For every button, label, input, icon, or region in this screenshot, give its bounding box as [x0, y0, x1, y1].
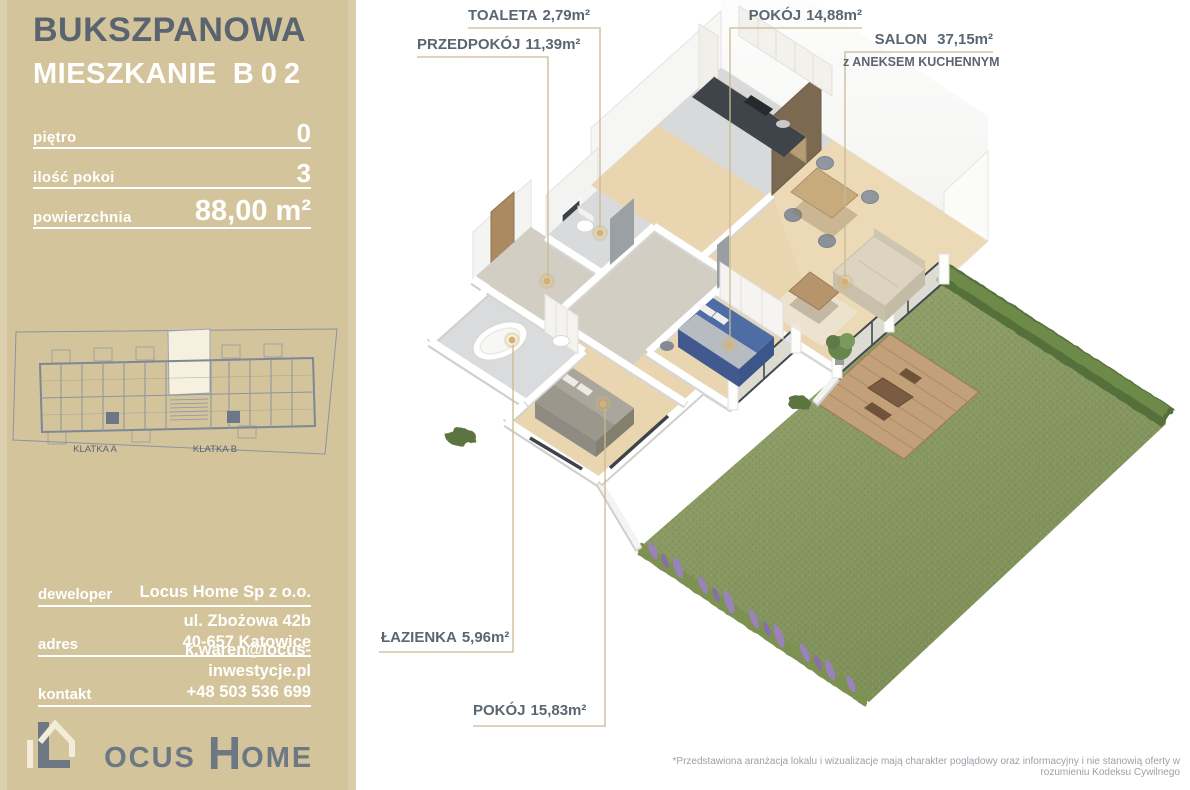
spec-value-floor: 0 — [297, 121, 311, 146]
logo-text-ome: OME — [241, 745, 313, 772]
spec-label-rooms: ilość pokoi — [33, 169, 115, 186]
contact-phone: +48 503 536 699 — [91, 682, 311, 703]
sidebar-left-edge — [0, 0, 7, 790]
sink — [776, 120, 790, 128]
klatka-a-label: KLATKA A — [73, 444, 117, 455]
washbasin — [553, 336, 570, 347]
floorplan-area: TOALETA2,79m² PRZEDPOKÓJ11,39m² POKÓJ14,… — [356, 0, 1190, 790]
address-label: adres — [38, 636, 78, 653]
room-label-pokoj-2: POKÓJ15,83m² — [473, 702, 609, 719]
spec-label-area: powierzchnia — [33, 209, 132, 226]
sidebar-right-edge — [348, 0, 356, 790]
logo-letter-h: H — [208, 735, 241, 772]
desk-chair — [660, 341, 674, 351]
room-label-salon: SALON37,15m² — [843, 31, 993, 48]
header: BUKSZPANOWA MIESZKANIEB02 — [33, 12, 336, 91]
stair-hatch — [170, 399, 208, 420]
contact-email: k.waren@locus-inwestycje.pl — [91, 640, 311, 682]
street-title: BUKSZPANOWA — [33, 12, 336, 49]
developer-name: Locus Home Sp z o.o. — [140, 582, 311, 603]
room-label-pokoj-1: POKÓJ14,88m² — [728, 7, 862, 24]
sidebar: BUKSZPANOWA MIESZKANIEB02 piętro 0 ilość… — [0, 0, 356, 790]
bush — [788, 396, 810, 410]
floorplan-3d-render — [356, 0, 1190, 790]
contact-row-contact: kontakt k.waren@locus-inwestycje.pl +48 … — [38, 658, 311, 707]
spec-value-rooms: 3 — [297, 161, 311, 186]
address-street: ul. Zbożowa 42b — [183, 611, 311, 632]
room-label-toaleta: TOALETA2,79m² — [468, 7, 600, 24]
unit-word: MIESZKANIE — [33, 58, 217, 90]
spec-value-area: 88,00 m² — [195, 198, 311, 226]
developer-label: deweloper — [38, 586, 112, 603]
stairwell-b-mark — [227, 411, 240, 423]
contact-row-developer: deweloper Locus Home Sp z o.o. — [38, 576, 311, 607]
contact-label: kontakt — [38, 686, 91, 703]
spec-row-area: powierzchnia 88,00 m² — [33, 192, 311, 229]
spec-label-floor: piętro — [33, 129, 76, 146]
room-label-przedpokoj: PRZEDPOKÓJ11,39m² — [417, 36, 551, 53]
unit-title: MIESZKANIEB02 — [33, 58, 336, 91]
spec-row-rooms: ilość pokoi 3 — [33, 152, 311, 189]
logo-text-ocus: OCUS — [104, 745, 196, 772]
room-label-salon-subtitle: z ANEKSEM KUCHENNYM — [843, 55, 993, 69]
klatka-b-label: KLATKA B — [193, 444, 237, 455]
room-label-lazienka: ŁAZIENKA5,96m² — [381, 629, 517, 646]
toilet — [577, 220, 594, 232]
keyplan-svg: KLATKA A KLATKA B — [12, 318, 344, 468]
spec-row-floor: piętro 0 — [33, 112, 311, 149]
stairwell-a-mark — [106, 412, 119, 424]
house-logo-icon — [26, 714, 82, 772]
legal-disclaimer: *Przedstawiona aranżacja lokalu i wizual… — [640, 756, 1180, 778]
bush — [446, 428, 476, 446]
company-logo: L OCUS H OME — [26, 714, 313, 772]
unit-code: B02 — [233, 58, 307, 90]
building-keyplan: KLATKA A KLATKA B — [12, 318, 344, 468]
